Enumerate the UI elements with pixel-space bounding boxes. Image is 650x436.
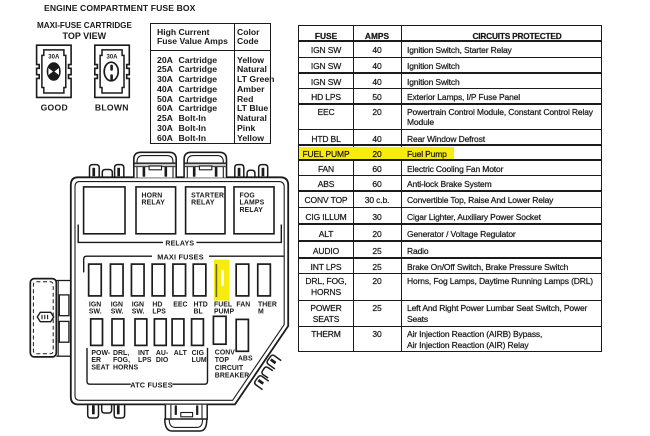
svg-text:DRL,: DRL, — [113, 350, 129, 357]
svg-text:FOG: FOG — [240, 192, 255, 199]
svg-text:LAMPS: LAMPS — [240, 200, 265, 207]
svg-text:AU-: AU- — [156, 350, 169, 357]
svg-text:SEAT: SEAT — [91, 365, 110, 372]
svg-text:HD: HD — [152, 301, 162, 308]
svg-text:M: M — [258, 309, 264, 316]
svg-text:BREAKER: BREAKER — [215, 373, 249, 380]
svg-text:SW.: SW. — [132, 309, 145, 316]
svg-text:EEC: EEC — [173, 301, 187, 308]
svg-text:ER: ER — [91, 357, 101, 364]
svg-text:IGN: IGN — [89, 301, 101, 308]
svg-text:BLOWN: BLOWN — [95, 102, 129, 112]
svg-text:HORN: HORN — [142, 192, 163, 199]
svg-text:SW.: SW. — [89, 309, 102, 316]
svg-text:ATC FUSES: ATC FUSES — [130, 380, 173, 389]
svg-text:HORNS: HORNS — [113, 365, 138, 372]
svg-text:RELAY: RELAY — [191, 200, 215, 207]
svg-text:POW-: POW- — [91, 350, 110, 357]
svg-text:CIG: CIG — [192, 350, 204, 357]
svg-text:30A: 30A — [106, 55, 118, 61]
svg-text:ALT: ALT — [174, 350, 188, 357]
svg-text:DIO: DIO — [156, 357, 169, 364]
svg-text:RELAY: RELAY — [142, 200, 166, 207]
svg-text:30A: 30A — [48, 55, 60, 61]
svg-text:ABS: ABS — [238, 355, 253, 362]
svg-text:FOG,: FOG, — [113, 357, 130, 364]
svg-text:STARTER: STARTER — [191, 192, 224, 199]
svg-text:IGN: IGN — [111, 301, 123, 308]
svg-text:INT: INT — [138, 350, 150, 357]
svg-text:SW.: SW. — [111, 309, 124, 316]
svg-text:GOOD: GOOD — [41, 102, 68, 112]
svg-text:LUM: LUM — [192, 357, 207, 364]
svg-text:FUEL: FUEL — [214, 301, 232, 308]
svg-text:RELAY: RELAY — [240, 207, 264, 214]
svg-text:BL: BL — [194, 309, 203, 316]
svg-text:PUMP: PUMP — [214, 309, 234, 316]
svg-text:MAXI FUSES: MAXI FUSES — [157, 252, 204, 261]
svg-text:RELAYS: RELAYS — [165, 241, 194, 248]
svg-text:TOP: TOP — [215, 357, 230, 364]
svg-text:FAN: FAN — [236, 301, 250, 308]
svg-text:CONV: CONV — [215, 350, 235, 357]
svg-text:LPS: LPS — [138, 357, 152, 364]
svg-text:CIRCUIT: CIRCUIT — [215, 365, 244, 372]
svg-text:THER: THER — [258, 301, 277, 308]
svg-text:HTD: HTD — [194, 301, 208, 308]
svg-text:IGN: IGN — [132, 301, 144, 308]
svg-text:LPS: LPS — [152, 309, 166, 316]
